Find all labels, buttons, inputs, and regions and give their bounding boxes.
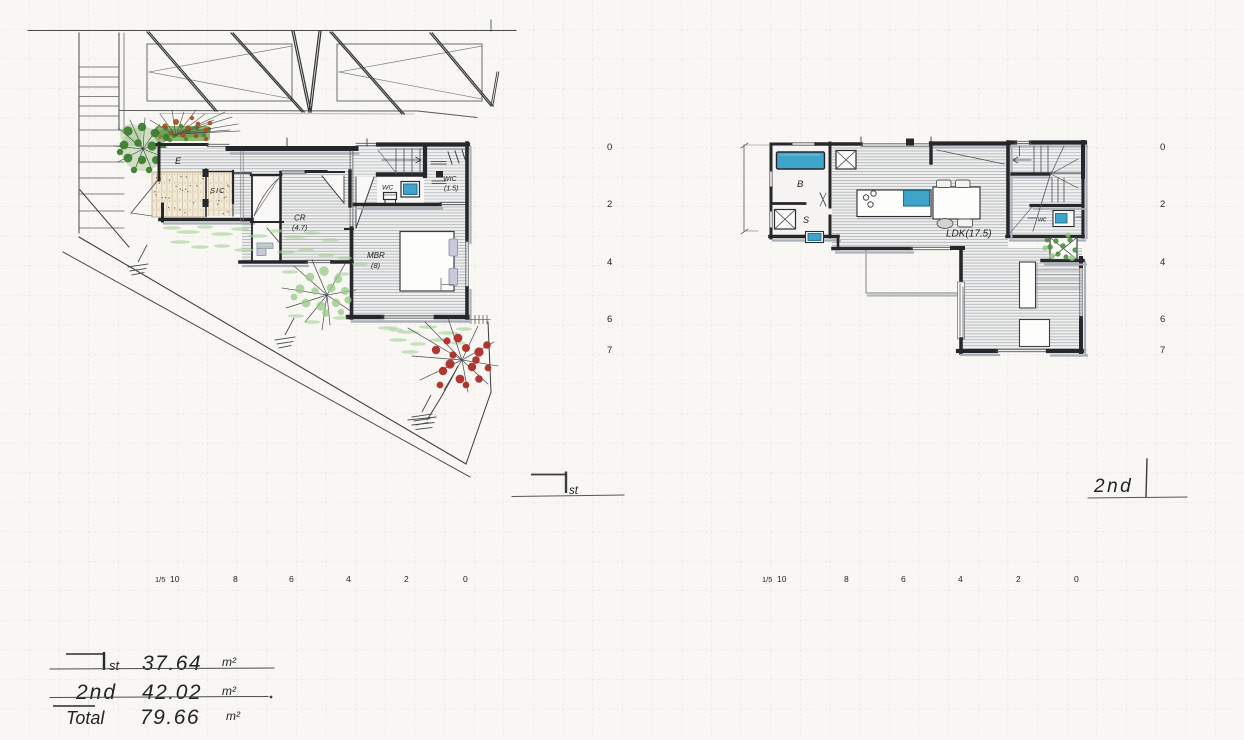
svg-text:Total: Total <box>66 708 105 728</box>
svg-text:MBR: MBR <box>367 251 385 260</box>
svg-text:6: 6 <box>289 574 294 584</box>
svg-text:6: 6 <box>901 574 906 584</box>
svg-text:2nd: 2nd <box>1093 476 1133 497</box>
svg-text:CR: CR <box>294 214 306 223</box>
svg-text:6: 6 <box>607 314 612 325</box>
svg-text:E: E <box>175 156 182 166</box>
svg-text:0: 0 <box>607 142 612 153</box>
svg-text:7: 7 <box>607 345 612 356</box>
svg-text:B: B <box>797 179 804 190</box>
svg-text:2: 2 <box>1160 199 1165 210</box>
svg-text:4: 4 <box>607 257 612 268</box>
svg-text:2: 2 <box>607 199 612 210</box>
svg-text:4: 4 <box>958 574 963 584</box>
svg-text:(4.7): (4.7) <box>292 223 308 232</box>
svg-text:m²: m² <box>222 684 237 698</box>
svg-text:m²: m² <box>226 709 241 723</box>
svg-text:4: 4 <box>346 574 351 584</box>
svg-text:m²: m² <box>222 655 237 669</box>
svg-text:79.66: 79.66 <box>140 706 200 729</box>
svg-text:8: 8 <box>844 574 849 584</box>
svg-text:42.02: 42.02 <box>142 681 202 704</box>
svg-text:8: 8 <box>233 574 238 584</box>
svg-text:2nd: 2nd <box>75 681 117 704</box>
svg-text:1/5: 1/5 <box>155 575 165 584</box>
svg-text:(8): (8) <box>371 261 381 270</box>
svg-text:(1.5): (1.5) <box>444 186 458 193</box>
svg-text:2: 2 <box>1016 574 1021 584</box>
svg-text:WC: WC <box>382 185 393 192</box>
svg-text:10: 10 <box>170 574 180 584</box>
svg-text:0: 0 <box>1160 142 1165 153</box>
svg-text:37.64: 37.64 <box>142 652 202 675</box>
svg-text:WIC: WIC <box>443 176 458 183</box>
svg-text:4: 4 <box>1160 257 1165 268</box>
svg-text:S: S <box>803 215 809 225</box>
svg-text:0: 0 <box>463 574 468 584</box>
svg-text:SIC: SIC <box>210 186 226 195</box>
svg-text:7: 7 <box>1160 345 1165 356</box>
svg-text:st: st <box>109 658 121 673</box>
svg-text:2: 2 <box>404 574 409 584</box>
svg-text:LDK(17.5): LDK(17.5) <box>946 229 992 240</box>
svg-text:0: 0 <box>1074 574 1079 584</box>
svg-text:1/5: 1/5 <box>762 575 772 584</box>
svg-text:10: 10 <box>777 574 787 584</box>
svg-text:6: 6 <box>1160 314 1165 325</box>
svg-text:wc: wc <box>1038 217 1047 224</box>
